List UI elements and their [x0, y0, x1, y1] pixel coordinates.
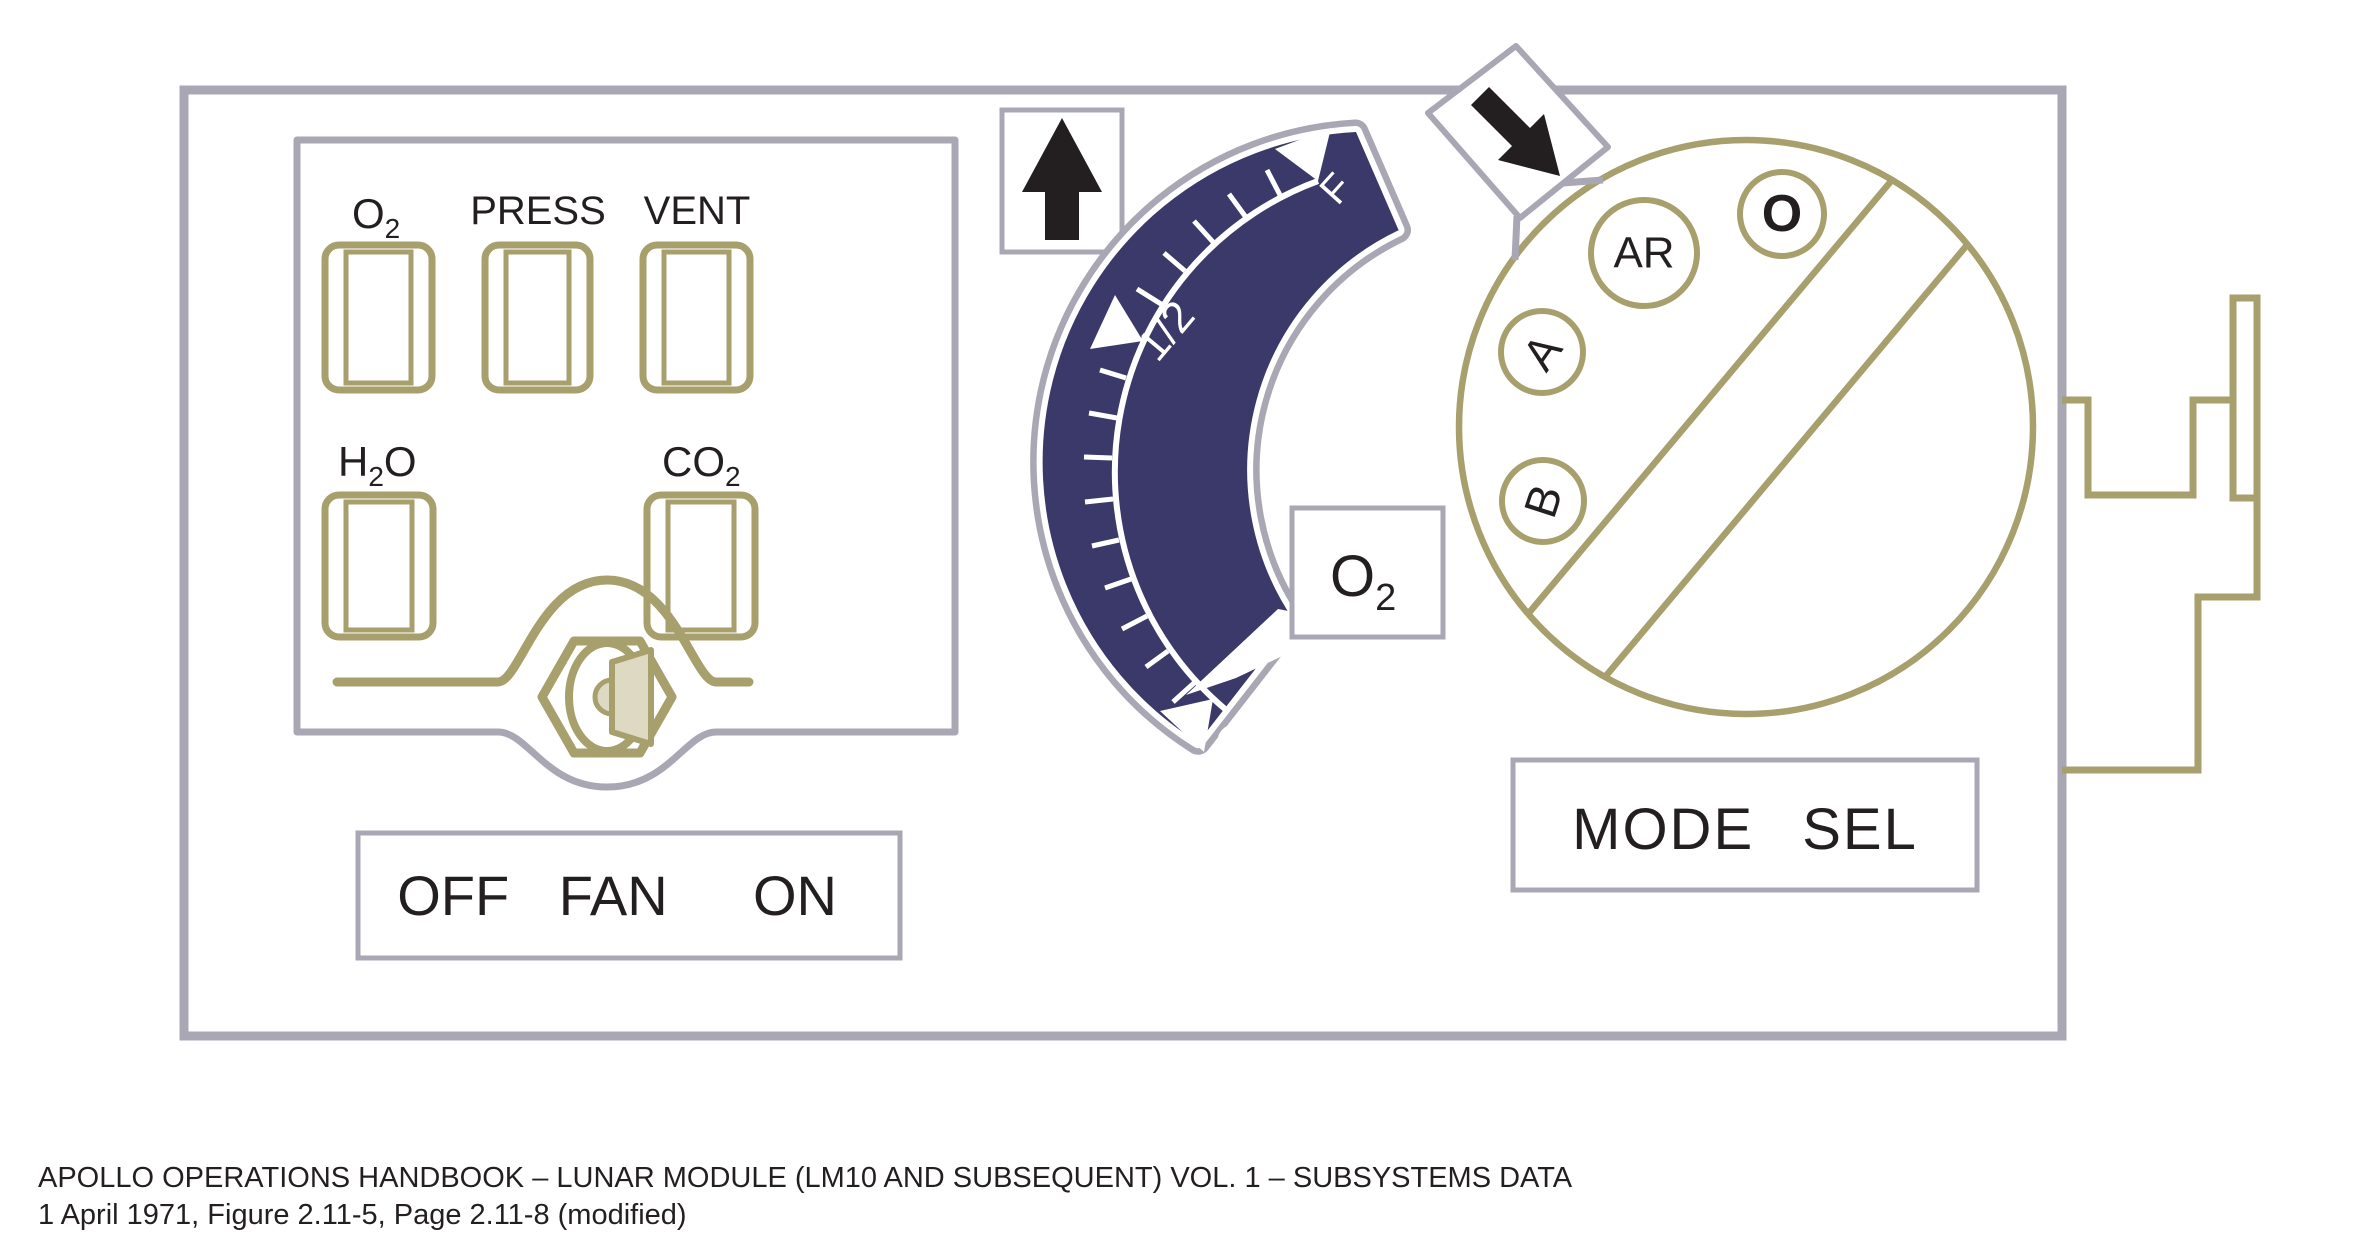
fan-toggle-switch [542, 641, 672, 753]
up-arrow-callout [1002, 110, 1122, 252]
label-vent-window: VENT [644, 189, 751, 233]
callout-leader-vertical [1515, 216, 1517, 260]
panel-diagram: O2 PRESS VENT H2O CO2 OFF FAN ON [0, 0, 2362, 1241]
edge-connector-outline [2062, 298, 2257, 770]
fan-toggle-lever [612, 650, 651, 744]
mode-selector-dial: AR O A B [1459, 140, 2033, 714]
edge-connector-notch [2233, 400, 2257, 498]
figure-caption-line1: APOLLO OPERATIONS HANDBOOK – LUNAR MODUL… [38, 1162, 1573, 1194]
label-press-window: PRESS [470, 189, 606, 233]
edge-connector-path [2062, 298, 2257, 770]
fan-switch-plate-label: OFF FAN ON [397, 864, 837, 927]
mode-position-ar-label: AR [1613, 229, 1674, 278]
figure-caption-line2: 1 April 1971, Figure 2.11-5, Page 2.11-8… [38, 1199, 687, 1231]
mode-position-o-label: O [1762, 185, 1802, 243]
mode-sel-plate-label: MODE SEL [1572, 797, 1918, 862]
figure-page: O2 PRESS VENT H2O CO2 OFF FAN ON [0, 0, 2362, 1241]
up-arrow-stem [1045, 190, 1079, 240]
